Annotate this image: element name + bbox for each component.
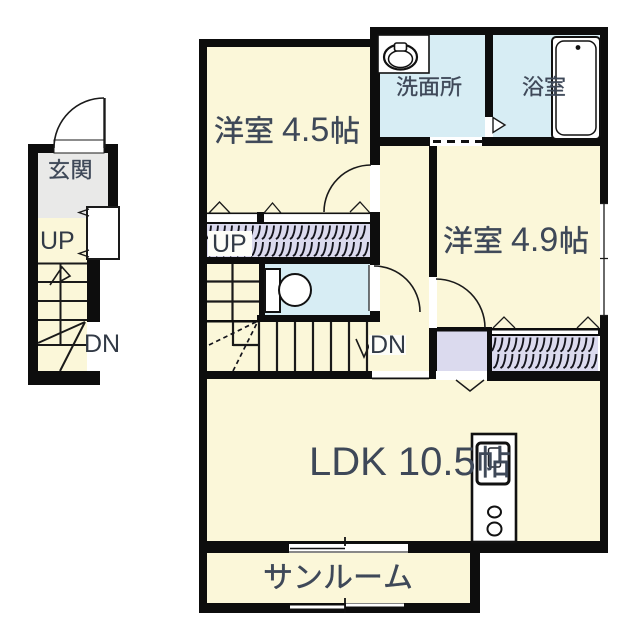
svg-text:DN: DN	[370, 331, 406, 359]
svg-text:DN: DN	[84, 330, 120, 358]
svg-text:LDK 10.5: LDK 10.5	[309, 440, 476, 484]
svg-text:UP: UP	[212, 230, 247, 258]
svg-text:4.5: 4.5	[282, 111, 329, 149]
svg-text:4.9: 4.9	[511, 221, 558, 259]
svg-text:UP: UP	[40, 227, 75, 255]
